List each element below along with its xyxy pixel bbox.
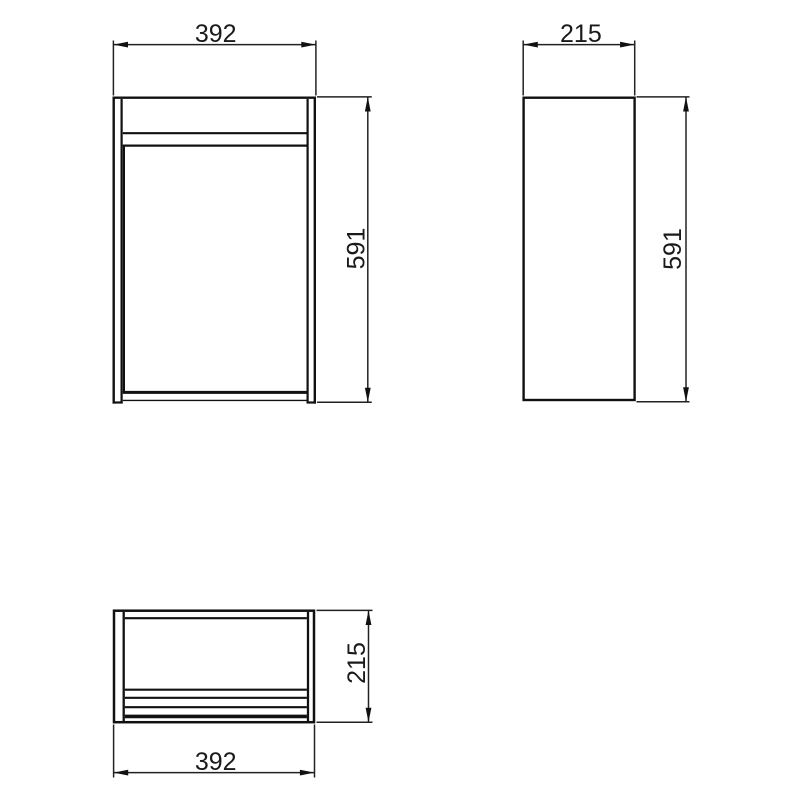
- svg-text:392: 392: [195, 20, 237, 48]
- svg-text:591: 591: [343, 228, 371, 270]
- svg-text:215: 215: [343, 642, 371, 684]
- svg-text:591: 591: [659, 228, 687, 270]
- svg-text:392: 392: [195, 748, 237, 776]
- svg-text:215: 215: [560, 20, 602, 48]
